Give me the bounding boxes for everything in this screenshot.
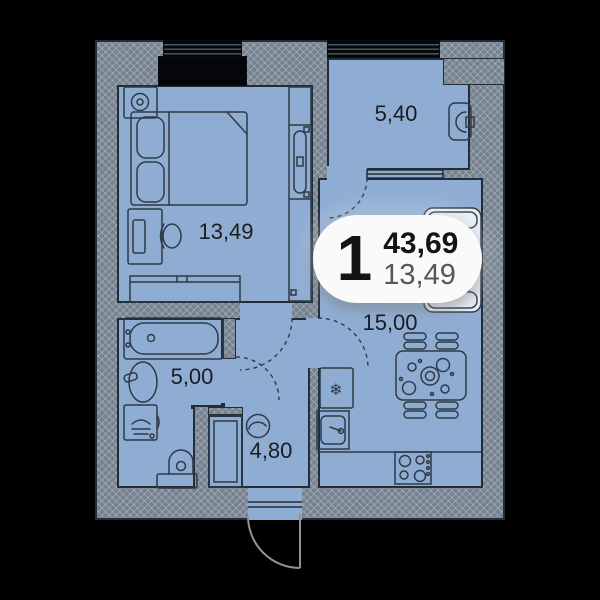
unit-info-badge: 1 43,69 13,49 bbox=[313, 215, 482, 303]
loggia-door-opening bbox=[327, 166, 367, 182]
bedroom-window-niche bbox=[158, 56, 247, 86]
living-area: 13,49 bbox=[383, 260, 458, 290]
kitchen-door-opening bbox=[306, 318, 322, 368]
rooms-count: 1 bbox=[337, 230, 371, 288]
bathroom-door-opening bbox=[219, 359, 240, 403]
room-bathroom-upper bbox=[117, 318, 223, 407]
room-bathroom-lower bbox=[117, 407, 195, 488]
entrance-opening bbox=[248, 488, 302, 520]
bedroom-area-label: 13,49 bbox=[198, 219, 253, 245]
total-area: 43,69 bbox=[383, 228, 458, 259]
wall-bathroom-side bbox=[223, 318, 236, 359]
hallway-area-label: 4,80 bbox=[250, 438, 293, 464]
loggia-area-label: 5,40 bbox=[375, 101, 418, 127]
bathroom-seam bbox=[119, 400, 191, 412]
floorplan-canvas: ❄ bbox=[0, 0, 600, 600]
wall-niche-top bbox=[208, 407, 243, 415]
wall-corner-loggia bbox=[443, 58, 505, 85]
loggia-window bbox=[327, 40, 440, 58]
hallway-wardrobe-niche bbox=[208, 415, 243, 488]
bathroom-area-label: 5,00 bbox=[171, 364, 214, 390]
room-bedroom bbox=[117, 85, 313, 303]
bedroom-door-opening bbox=[240, 303, 292, 320]
kitchen-living-area-label: 15,00 bbox=[362, 310, 417, 336]
